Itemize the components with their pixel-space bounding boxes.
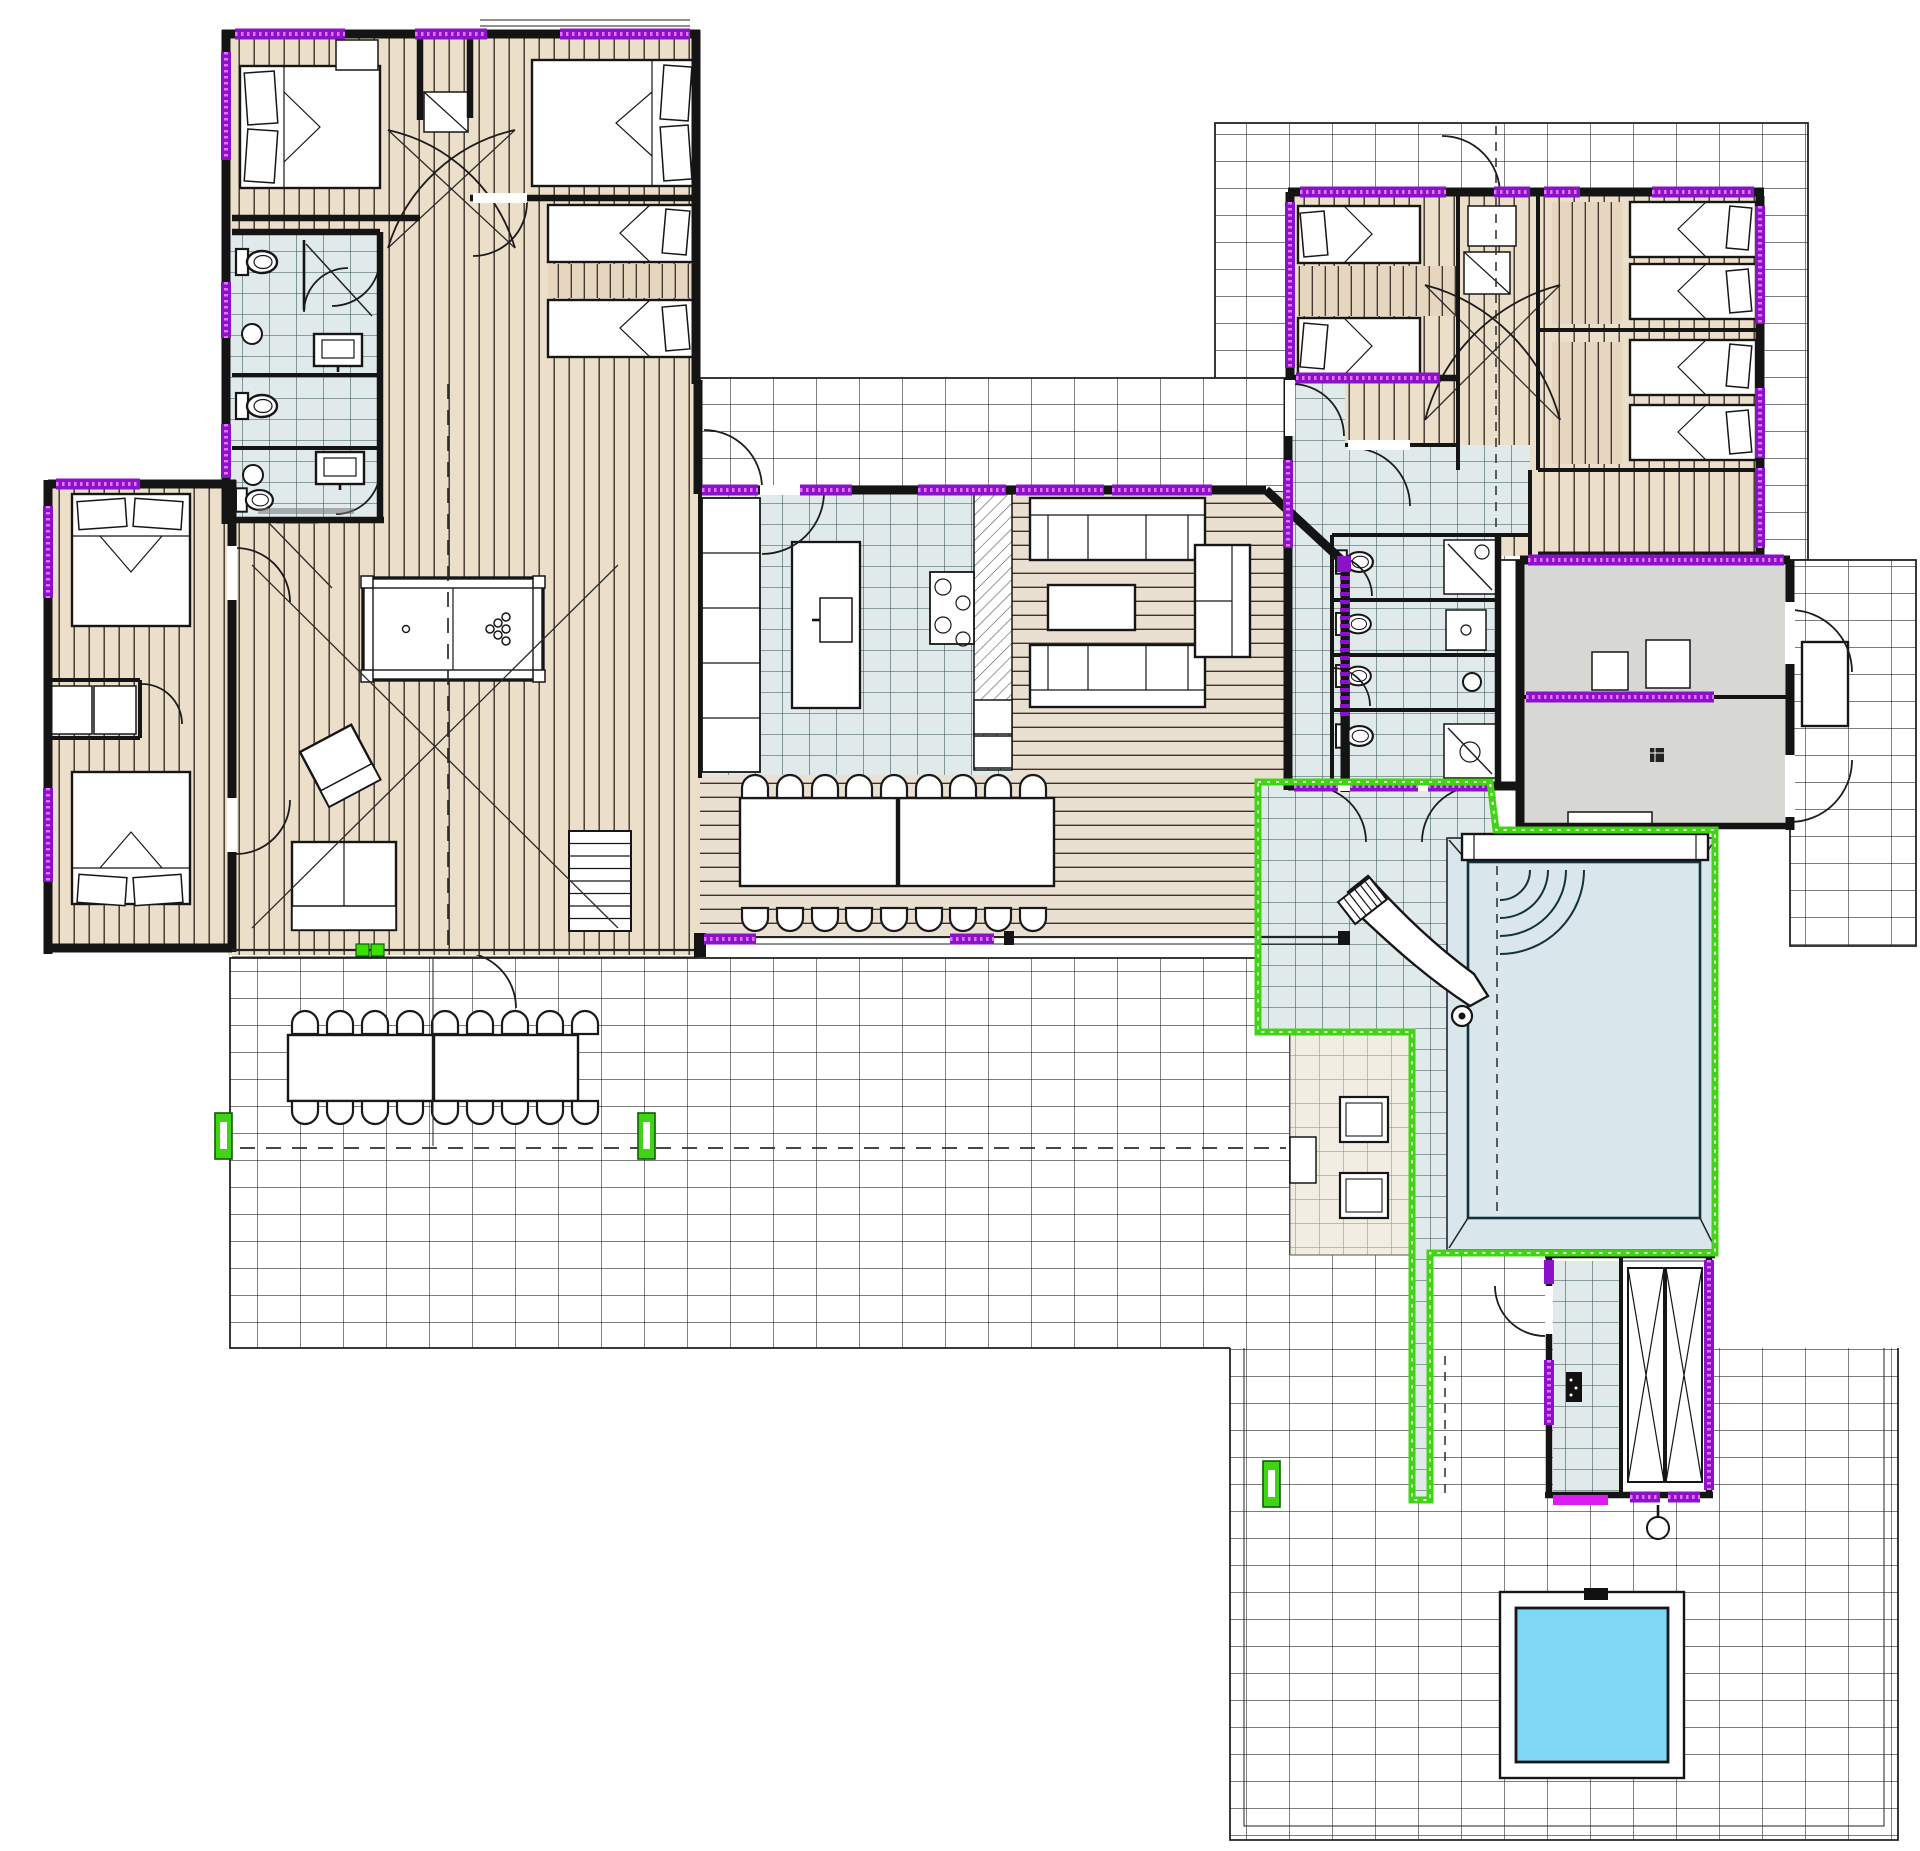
closet xyxy=(1468,206,1516,246)
closet xyxy=(94,686,136,734)
single-bed xyxy=(1630,405,1756,460)
water-heater xyxy=(1566,1372,1582,1402)
terrace-east xyxy=(1790,560,1916,946)
single-bed xyxy=(1630,340,1756,395)
terrace-south-west xyxy=(230,958,1290,1348)
single-bed xyxy=(1298,318,1420,375)
sink xyxy=(242,324,262,344)
shower-tray xyxy=(1446,610,1486,650)
terrace-north-strip xyxy=(700,378,1288,492)
sink xyxy=(1463,673,1481,691)
pool-bench xyxy=(1462,834,1708,860)
floor-plan-drawing xyxy=(0,0,1920,1851)
island-sink xyxy=(820,598,852,642)
shower xyxy=(1444,540,1496,594)
washbasin xyxy=(314,334,362,372)
double-bed xyxy=(72,772,190,906)
outdoor-dining-set xyxy=(288,1011,598,1124)
equipment-box xyxy=(1646,640,1690,688)
green-door-marker xyxy=(371,944,384,956)
closet xyxy=(50,686,92,734)
double-bed xyxy=(532,60,694,186)
outdoor-stool xyxy=(1340,1097,1388,1142)
pool-house-storage xyxy=(1628,1268,1702,1482)
great-room-sofa xyxy=(292,842,396,930)
green-post xyxy=(215,1113,232,1159)
billiard-table xyxy=(361,576,545,682)
floor-drain xyxy=(1650,748,1664,762)
shower xyxy=(1444,724,1496,778)
green-post xyxy=(1263,1461,1280,1507)
outdoor-stool xyxy=(1340,1173,1388,1218)
floor-plan-page xyxy=(0,0,1920,1851)
toilet xyxy=(236,393,277,419)
coffee-table xyxy=(1048,585,1135,630)
toilet xyxy=(236,249,277,275)
sink xyxy=(243,465,263,485)
equipment-box xyxy=(1592,652,1628,690)
terrace-table xyxy=(1802,642,1848,726)
sofa xyxy=(1030,498,1205,560)
single-bed xyxy=(1298,206,1420,263)
single-bed xyxy=(548,205,696,262)
green-post xyxy=(638,1113,655,1159)
pool-coping xyxy=(1447,838,1717,1250)
pool-house-shower-floor xyxy=(1553,1261,1619,1493)
floor-east-corridor xyxy=(1345,445,1530,535)
green-door-marker xyxy=(356,944,369,956)
single-bed xyxy=(1630,202,1756,257)
outdoor-side-table xyxy=(1290,1137,1316,1183)
stairs xyxy=(569,831,631,931)
sofa xyxy=(1030,645,1205,707)
plunge-pool xyxy=(1500,1588,1684,1778)
closet xyxy=(336,40,378,70)
single-bed xyxy=(548,300,696,357)
indoor-dining-set xyxy=(740,775,1054,931)
washbasin xyxy=(316,452,364,490)
single-bed xyxy=(1630,264,1756,319)
double-bed xyxy=(240,66,380,188)
double-bed xyxy=(72,494,190,626)
